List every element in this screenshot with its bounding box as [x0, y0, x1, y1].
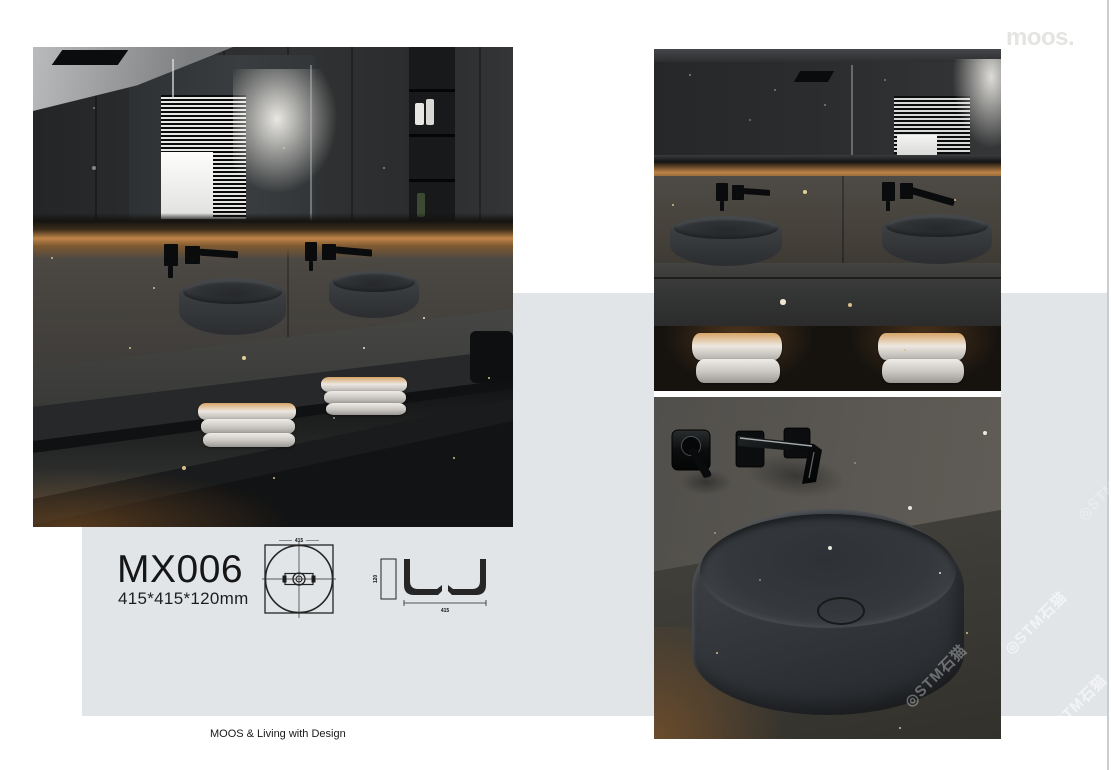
counter-front — [654, 279, 1001, 326]
faucet-handle — [309, 261, 313, 271]
catalog-page: moos. — [0, 0, 1111, 770]
round-basin-left — [670, 216, 782, 266]
wall-faucet — [664, 424, 844, 504]
ceiling-vent — [794, 71, 834, 82]
faucet-handle — [168, 266, 173, 278]
towel — [326, 403, 406, 415]
product-dimensions: 415*415*120mm — [118, 589, 249, 609]
faucet-plate — [732, 185, 744, 200]
towel — [692, 333, 782, 360]
drain-ring — [817, 597, 865, 625]
glass-partition-edge — [851, 65, 853, 159]
wall-panel-seam — [842, 176, 844, 266]
towel — [203, 433, 295, 447]
stone-speckles — [654, 49, 656, 51]
brand-logo: moos. — [1006, 24, 1074, 52]
side-view-width-label: 415 — [441, 608, 450, 614]
faucet-mixer-plate — [882, 182, 895, 201]
photo-double-basin-front — [654, 49, 1001, 391]
towel — [696, 359, 780, 383]
bright-window-pane — [897, 135, 937, 155]
towel — [321, 377, 407, 392]
faucet-plate — [185, 246, 200, 264]
drawing-top-view: 415 — [261, 537, 337, 619]
faucet-mixer-plate — [164, 244, 178, 266]
round-basin-right — [882, 214, 992, 264]
photo-basin-closeup — [654, 397, 1001, 739]
stone-speckles — [33, 47, 35, 49]
towel — [198, 403, 296, 420]
stone-speckles — [654, 397, 656, 399]
towel — [201, 419, 295, 434]
faucet-handle — [886, 201, 890, 211]
faucet-handle — [720, 201, 724, 211]
dark-stool — [470, 331, 513, 383]
window-light-glow — [952, 59, 1001, 149]
product-model: MX006 — [117, 548, 243, 592]
photo-bathroom-overview — [33, 47, 513, 527]
faucet-plate — [322, 244, 336, 260]
towel — [878, 333, 966, 360]
round-basin-left — [179, 278, 286, 335]
ceiling-reflection — [654, 49, 1001, 62]
floor-warm-glow — [33, 467, 293, 527]
side-view-height-label: 120 — [373, 575, 379, 584]
faucet-mixer-plate — [305, 242, 317, 261]
drawing-side-section: 120 415 — [371, 551, 490, 614]
footer-tagline: MOOS & Living with Design — [210, 728, 346, 740]
page-right-border — [1107, 0, 1109, 770]
towel — [882, 359, 964, 383]
round-basin — [692, 509, 964, 715]
faucet-mixer-plate — [716, 183, 728, 201]
round-basin-right — [329, 271, 419, 318]
